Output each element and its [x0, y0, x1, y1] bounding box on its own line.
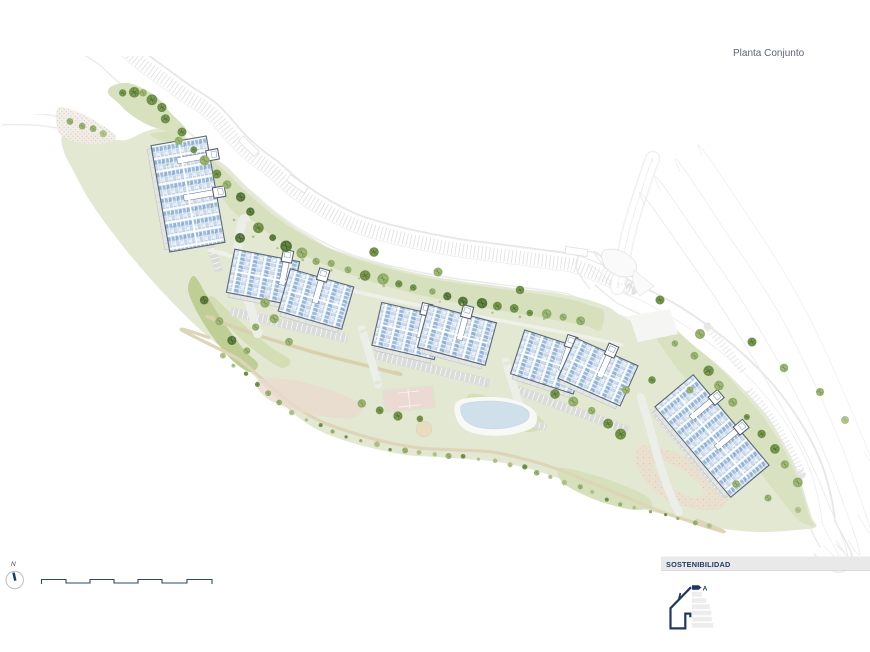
- svg-text:N: N: [11, 561, 16, 568]
- svg-text:A: A: [703, 586, 708, 593]
- svg-text:SOSTENIBILIDAD: SOSTENIBILIDAD: [666, 560, 730, 569]
- svg-text:Planta Conjunto: Planta Conjunto: [733, 48, 805, 59]
